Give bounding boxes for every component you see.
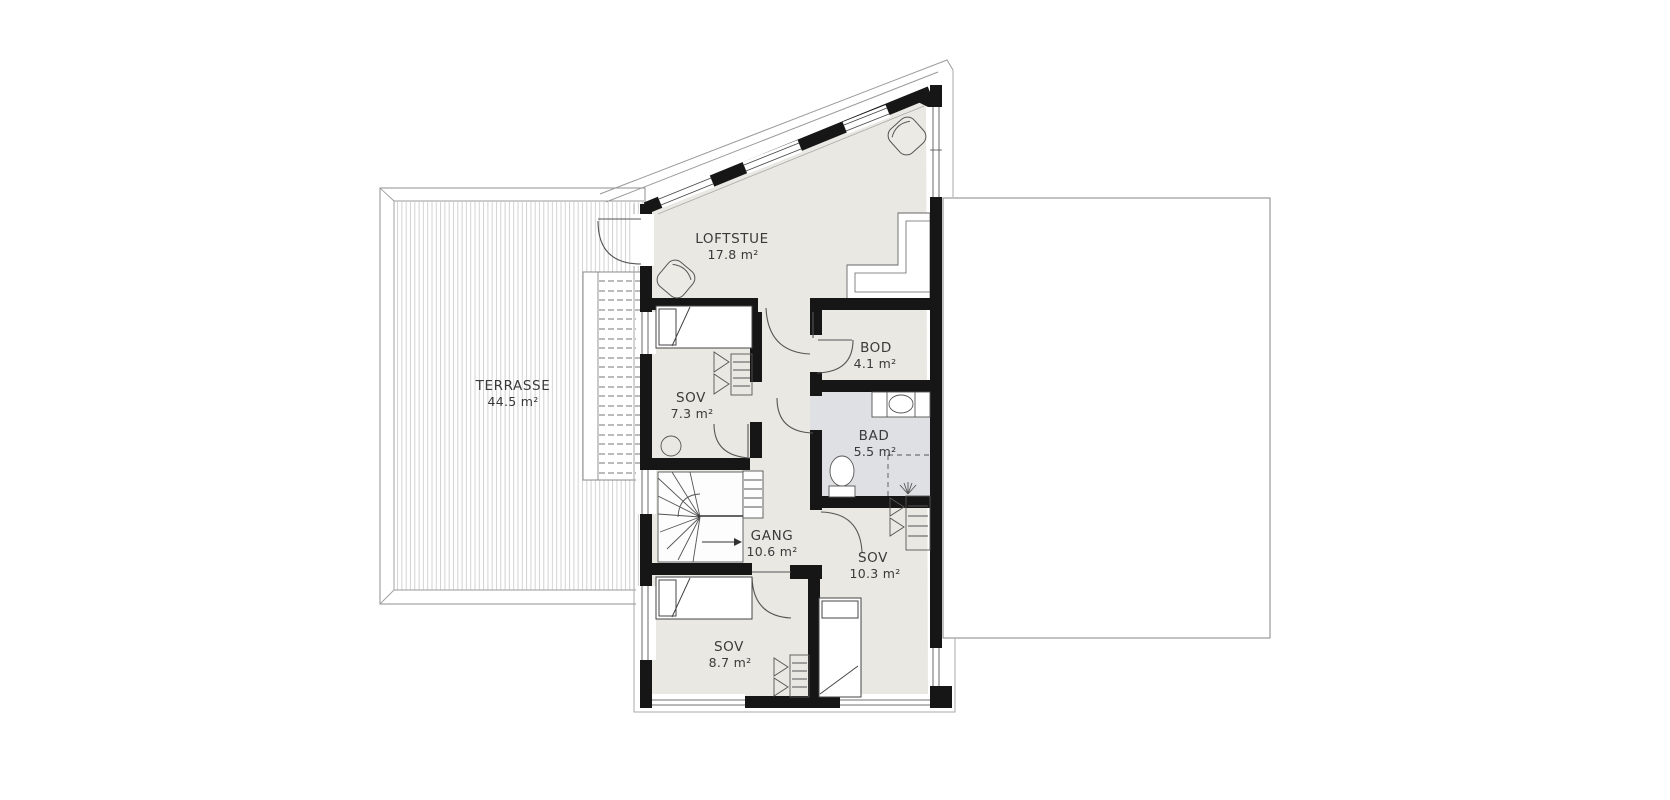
bed-icon [656,577,752,619]
bed-icon [819,598,861,697]
room-label-sov-8: SOV [714,639,744,655]
room-label-bad: BAD [859,428,890,444]
sink-vanity-icon [872,392,930,417]
room-area-loftstue: 17.8 m² [707,247,758,262]
window [636,470,656,514]
window [928,107,944,197]
window [636,586,656,660]
room-label-sov-7: SOV [676,390,706,406]
room-area-gang: 10.6 m² [746,544,797,559]
room-area-bod: 4.1 m² [854,356,897,371]
toilet-icon [829,456,855,497]
window [928,648,944,686]
window [636,312,656,354]
room-area-terrasse: 44.5 m² [487,394,538,409]
room-label-sov-10: SOV [858,550,888,566]
room-label-loftstue: LOFTSTUE [695,231,768,247]
bed-icon [656,306,752,348]
window [652,694,745,710]
room-label-terrasse: TERRASSE [475,378,551,394]
floor-plan: TERRASSE 44.5 m² LOFTSTUE 17.8 m² SOV 7.… [0,0,1670,800]
roof-outline [943,198,1270,638]
floor-plan-drawing: TERRASSE 44.5 m² LOFTSTUE 17.8 m² SOV 7.… [0,0,1670,800]
room-area-sov-7: 7.3 m² [671,406,714,421]
room-area-sov-10: 10.3 m² [849,566,900,581]
room-area-sov-8: 8.7 m² [709,655,752,670]
room-label-gang: GANG [751,528,794,544]
room-area-bad: 5.5 m² [854,444,897,459]
room-label-bod: BOD [860,340,892,356]
